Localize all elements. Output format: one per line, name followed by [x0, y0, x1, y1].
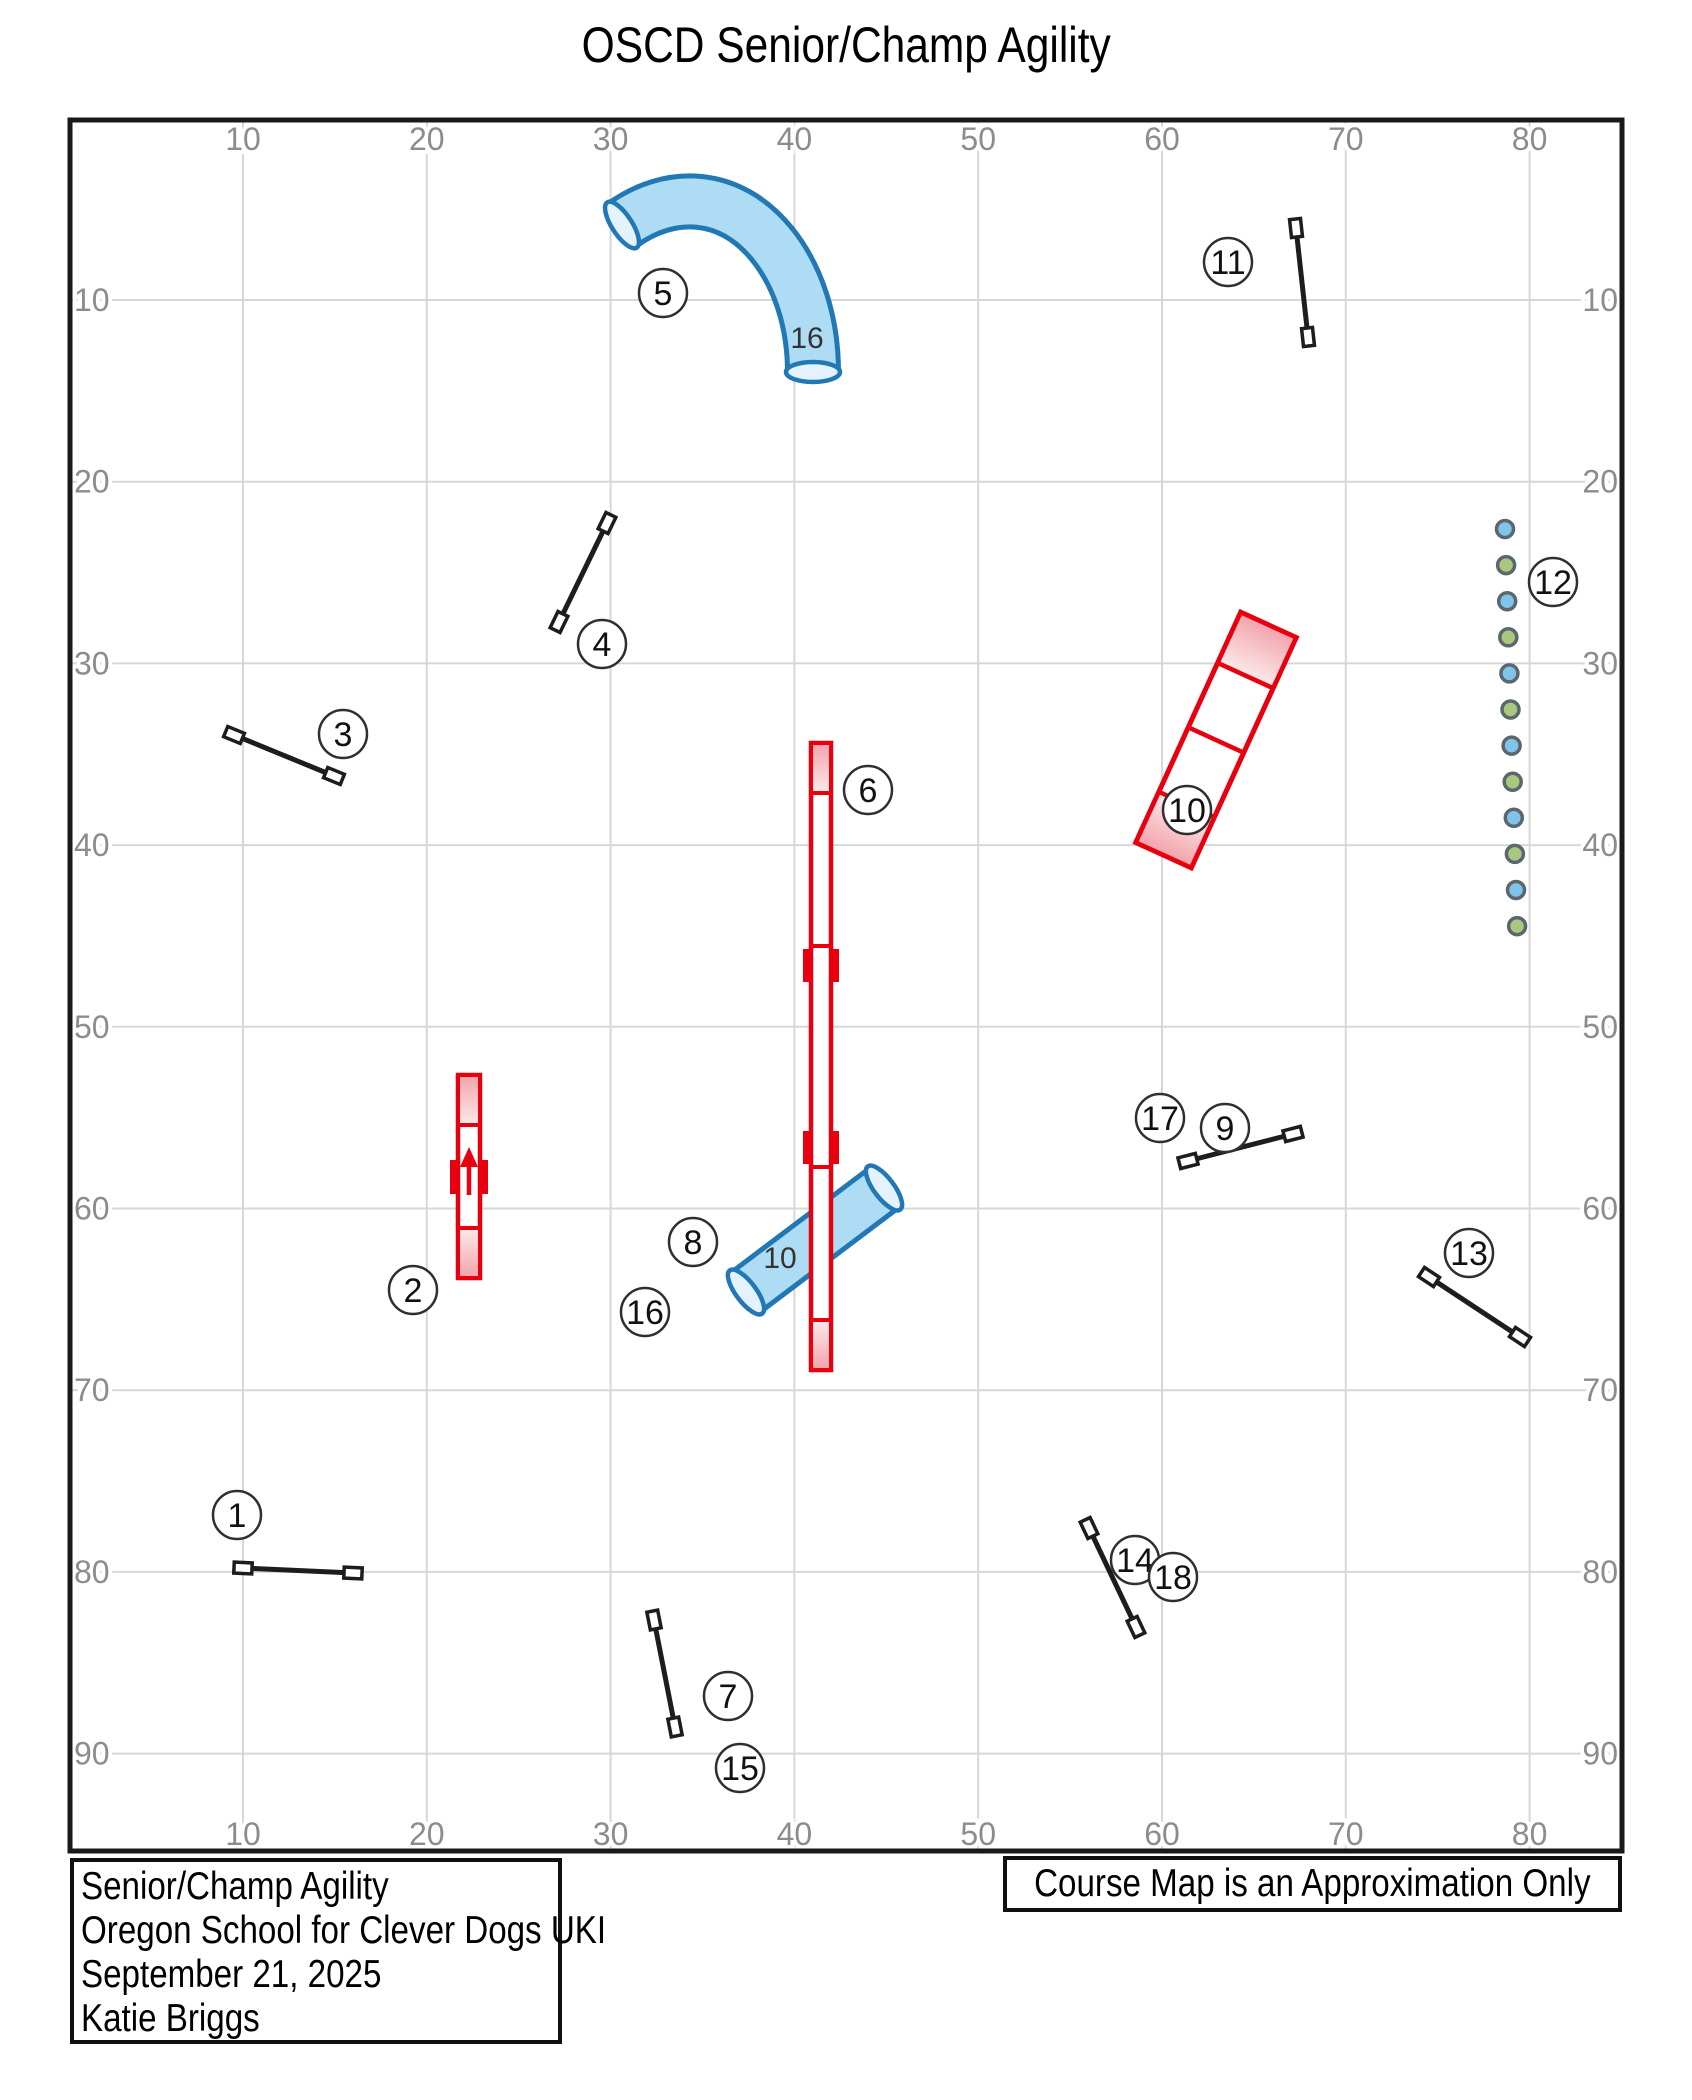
- marker-number: 11: [1210, 244, 1245, 282]
- x-axis-tick-label-bottom: 30: [593, 1816, 629, 1852]
- obstacle-number-marker: 15: [716, 1744, 764, 1792]
- y-axis-tick-label-left: 20: [74, 464, 110, 500]
- jump-wing-end: [344, 1567, 362, 1579]
- tunnel-opening: [786, 362, 840, 382]
- jump-wing-end: [1509, 1327, 1530, 1346]
- weave-pole: [1506, 845, 1523, 862]
- weave-pole: [1502, 701, 1519, 718]
- y-axis-tick-label-left: 50: [74, 1009, 110, 1045]
- pivot-tick: [482, 1160, 488, 1194]
- contact-zone-top: [811, 743, 831, 793]
- obstacle-number-marker: 2: [389, 1266, 437, 1314]
- weave-pole: [1500, 629, 1517, 646]
- marker-number: 12: [1534, 564, 1572, 602]
- marker-number: 4: [593, 626, 612, 664]
- obstacle-number-marker: 4: [578, 620, 626, 668]
- jump-wing-end: [668, 1717, 682, 1737]
- y-axis-tick-label-right: 50: [1582, 1009, 1618, 1045]
- marker-number: 5: [654, 275, 673, 313]
- jump-bar: [654, 1620, 675, 1727]
- weave-poles-obstacle: [1497, 521, 1526, 935]
- jump-wing-end: [1080, 1518, 1098, 1539]
- disclaimer-box: Course Map is an Approximation Only: [1003, 1856, 1622, 1912]
- contact-zone-top: [458, 1075, 480, 1125]
- marker-number: 18: [1154, 1559, 1192, 1597]
- marker-number: 6: [859, 772, 878, 810]
- marker-number: 8: [684, 1224, 703, 1262]
- marker-number: 1: [228, 1497, 247, 1535]
- x-axis-tick-label-top: 20: [409, 121, 445, 157]
- jump-wing-end: [1127, 1617, 1145, 1638]
- obstacle-number-marker: 17: [1136, 1094, 1184, 1142]
- jump-wing-end: [647, 1610, 661, 1630]
- weave-pole: [1504, 773, 1521, 790]
- jump-wing-end: [234, 1562, 252, 1574]
- plank-joint-tick: [803, 949, 809, 982]
- weave-pole: [1508, 882, 1525, 899]
- x-axis-tick-label-top: 80: [1512, 121, 1548, 157]
- y-axis-tick-label-left: 30: [74, 645, 110, 681]
- field-border: [70, 120, 1622, 1851]
- disclaimer-text: Course Map is an Approximation Only: [1034, 1862, 1590, 1906]
- obstacle-number-marker: 1: [213, 1491, 261, 1539]
- x-axis-tick-label-bottom: 50: [960, 1816, 996, 1852]
- weave-pole: [1499, 593, 1516, 610]
- marker-number: 17: [1141, 1100, 1179, 1138]
- marker-number: 7: [719, 1678, 738, 1716]
- x-axis-tick-label-bottom: 10: [225, 1816, 261, 1852]
- obstacle-number-marker: 8: [669, 1218, 717, 1266]
- marker-number: 9: [1216, 1110, 1235, 1148]
- y-axis-tick-label-right: 60: [1582, 1191, 1618, 1227]
- info-line-club: Oregon School for Clever Dogs UKI: [81, 1909, 558, 1953]
- plank-joint-tick: [803, 1131, 809, 1164]
- jump-wing-end: [1178, 1153, 1198, 1168]
- jump-7-15-obstacle: [647, 1610, 682, 1737]
- jump-wing-end: [324, 767, 345, 784]
- dog-walk-plank: [811, 743, 831, 1370]
- contact-zone-bottom: [811, 1320, 831, 1370]
- jump-1-obstacle: [234, 1562, 362, 1579]
- obstacle-number-marker: 3: [319, 710, 367, 758]
- x-axis-tick-label-bottom: 70: [1328, 1816, 1364, 1852]
- weave-pole: [1501, 665, 1518, 682]
- x-axis-tick-label-top: 40: [777, 121, 813, 157]
- obstacle-number-marker: 13: [1445, 1229, 1493, 1277]
- jump-bar: [1429, 1277, 1520, 1337]
- weave-pole: [1503, 737, 1520, 754]
- obstacle-number-marker: 5: [639, 269, 687, 317]
- a-frame-obstacle: [1136, 612, 1296, 868]
- jump-11-obstacle: [1290, 218, 1315, 346]
- marker-number: 16: [626, 1294, 664, 1332]
- obstacle-number-marker: 6: [844, 766, 892, 814]
- contact-zone-bottom: [458, 1228, 480, 1278]
- y-axis-tick-label-right: 10: [1582, 282, 1618, 318]
- x-axis-tick-label-top: 30: [593, 121, 629, 157]
- jump-wing-end: [550, 612, 568, 633]
- y-axis-tick-label-right: 20: [1582, 464, 1618, 500]
- weave-pole: [1505, 809, 1522, 826]
- jump-wing-end: [1302, 327, 1315, 346]
- course-map-page: OSCD Senior/Champ Agility 10102020303040…: [0, 0, 1692, 2100]
- obstacle-number-marker: 12: [1529, 558, 1577, 606]
- jump-bar: [1296, 228, 1308, 337]
- y-axis-tick-label-left: 40: [74, 827, 110, 863]
- obstacle-number-marker: 11: [1204, 238, 1252, 286]
- x-axis-tick-label-bottom: 40: [777, 1816, 813, 1852]
- obstacle-number-marker: 16: [621, 1288, 669, 1336]
- x-axis-tick-label-top: 10: [225, 121, 261, 157]
- jump-13-obstacle: [1418, 1267, 1530, 1346]
- info-line-date: September 21, 2025: [81, 1953, 558, 1997]
- jump-wing-end: [1418, 1267, 1439, 1286]
- plank-joint-tick: [833, 949, 839, 982]
- marker-number: 13: [1450, 1235, 1488, 1273]
- y-axis-tick-label-right: 70: [1582, 1372, 1618, 1408]
- y-axis-tick-label-left: 80: [74, 1554, 110, 1590]
- y-axis-tick-label-left: 90: [74, 1736, 110, 1772]
- obstacle-number-marker: 10: [1163, 786, 1211, 834]
- obstacle-number-marker: 9: [1201, 1104, 1249, 1152]
- marker-layer: 123456789101112131415161718: [213, 238, 1577, 1792]
- teeter-obstacle: [450, 1075, 488, 1278]
- y-axis-tick-label-left: 10: [74, 282, 110, 318]
- marker-number: 2: [404, 1272, 423, 1310]
- tunnel-length-label: 10: [763, 1242, 796, 1275]
- y-axis-tick-label-left: 70: [74, 1372, 110, 1408]
- tunnel-length-label: 16: [790, 322, 823, 355]
- pivot-tick: [450, 1160, 456, 1194]
- weave-pole: [1498, 557, 1515, 574]
- y-axis-tick-label-left: 60: [74, 1191, 110, 1227]
- jump-wing-end: [1283, 1126, 1303, 1141]
- marker-number: 10: [1168, 792, 1206, 830]
- jump-bar: [559, 523, 607, 622]
- course-info-box: Senior/Champ Agility Oregon School for C…: [70, 1858, 562, 2044]
- jump-4-obstacle: [550, 513, 616, 633]
- y-axis-tick-label-right: 40: [1582, 827, 1618, 863]
- jump-wing-end: [224, 726, 245, 743]
- obstacle-layer: 1610: [224, 197, 1531, 1737]
- x-axis-tick-label-top: 70: [1328, 121, 1364, 157]
- jump-wing-end: [1290, 218, 1303, 237]
- x-axis-tick-label-bottom: 20: [409, 1816, 445, 1852]
- info-line-judge: Katie Briggs: [81, 1997, 558, 2041]
- x-axis-tick-label-bottom: 80: [1512, 1816, 1548, 1852]
- y-axis-tick-label-right: 30: [1582, 645, 1618, 681]
- jump-wing-end: [598, 513, 616, 534]
- plank-joint-tick: [833, 1131, 839, 1164]
- weave-pole: [1509, 918, 1526, 935]
- x-axis-tick-label-top: 60: [1144, 121, 1180, 157]
- grid-layer: 1010202030304040505060607070808010102020…: [70, 120, 1622, 1852]
- y-axis-tick-label-right: 80: [1582, 1554, 1618, 1590]
- obstacle-number-marker: 7: [704, 1672, 752, 1720]
- marker-number: 15: [721, 1750, 759, 1788]
- obstacle-number-marker: 18: [1149, 1553, 1197, 1601]
- y-axis-tick-label-right: 90: [1582, 1736, 1618, 1772]
- agility-course-diagram: 1010202030304040505060607070808010102020…: [0, 0, 1692, 2100]
- weave-pole: [1497, 521, 1514, 538]
- x-axis-tick-label-bottom: 60: [1144, 1816, 1180, 1852]
- x-axis-tick-label-top: 50: [960, 121, 996, 157]
- marker-number: 3: [334, 716, 353, 754]
- info-line-class: Senior/Champ Agility: [81, 1865, 558, 1909]
